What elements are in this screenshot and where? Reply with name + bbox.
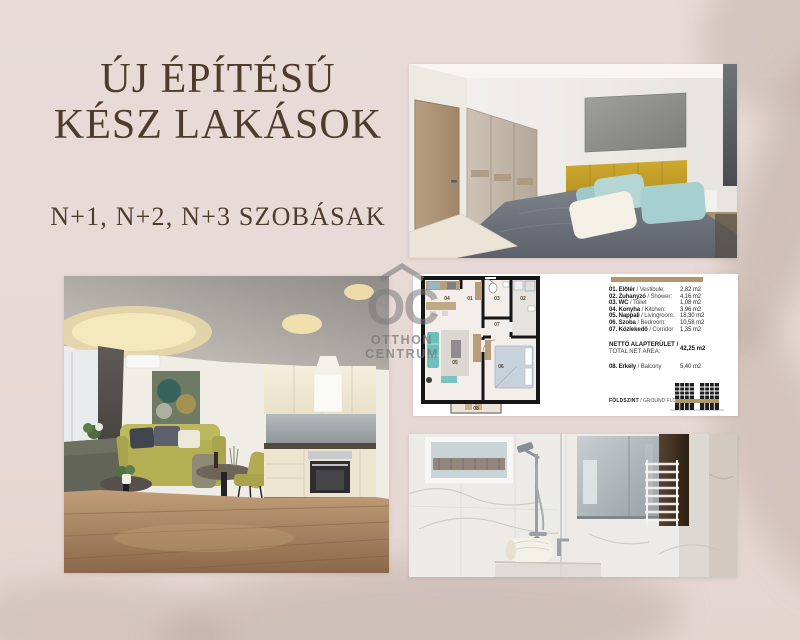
headline: ÚJ ÉPÍTÉSÚ KÉSZ LAKÁSOK xyxy=(48,56,388,148)
legend-row: 03. WC / Toilet1,08 m2 xyxy=(609,300,719,307)
room-number-living: 05 xyxy=(452,360,458,366)
room-number-wc: 03 xyxy=(494,296,500,302)
legend-row: 07. Közlekedő / Corridor1,35 m2 xyxy=(609,327,719,334)
room-number-vestibule: 01 xyxy=(467,296,473,302)
room-number-kitchen: 04 xyxy=(444,296,450,302)
lamp xyxy=(705,190,717,212)
floorplan-drawing: 04 01 03 02 07 05 06 08 xyxy=(421,276,541,414)
flyer-title-line1: ÚJ ÉPÍTÉSÚ xyxy=(48,56,388,102)
flyer-subtitle: N+1, N+2, N+3 SZOBÁSAK xyxy=(48,202,388,232)
bedroom-photo xyxy=(409,64,737,258)
ceiling-light xyxy=(282,314,322,334)
flyer-canvas: ÚJ ÉPÍTÉSÚ KÉSZ LAKÁSOK N+1, N+2, N+3 SZ… xyxy=(0,0,800,640)
wine-bottle xyxy=(214,452,218,468)
ac-unit xyxy=(126,355,160,368)
legend-row: 02. Zuhanyzó / Shower:4,16 m2 xyxy=(609,294,719,301)
total-net-area-value: 42,25 m2 xyxy=(680,346,705,352)
floorplan-panel: 04 01 03 02 07 05 06 08 01. Előtér / Ves… xyxy=(413,274,738,416)
curtain xyxy=(723,64,737,186)
entry-door-gap xyxy=(485,277,496,279)
oven xyxy=(308,451,352,459)
flyer-title-line2: KÉSZ LAKÁSOK xyxy=(48,102,388,148)
legend-row: 01. Előtér / Vestibule:2,82 m2 xyxy=(609,287,719,294)
floorplan-legend: 01. Előtér / Vestibule:2,82 m2 02. Zuhan… xyxy=(609,287,719,371)
legend-row-balcony: 08. Erkély / Balcony5,40 m2 xyxy=(609,364,719,371)
room-number-bedroom: 06 xyxy=(498,364,504,370)
building-elevation-icon xyxy=(669,380,725,414)
cushion xyxy=(178,430,200,448)
legend-row: 05. Nappali / Livingroom:18,30 m2 xyxy=(609,313,719,320)
accent-bar xyxy=(611,277,703,282)
room-number-corridor: 07 xyxy=(494,322,500,328)
countertop xyxy=(264,443,376,449)
ceiling-light xyxy=(344,284,374,300)
cushion xyxy=(154,426,180,446)
legend-row: 04. Konyha / Kitchen:3,96 m2 xyxy=(609,307,719,314)
wall-art xyxy=(585,93,686,152)
legend-row: 06. Szoba / Bedroom:10,58 m2 xyxy=(609,320,719,327)
leaf-shadow xyxy=(0,571,234,640)
bathroom-photo xyxy=(409,434,737,577)
door-handle xyxy=(451,180,457,183)
living-room-photo xyxy=(64,276,389,573)
room-number-shower: 02 xyxy=(520,296,526,302)
pillow xyxy=(639,181,706,224)
room-number-balcony: 08 xyxy=(473,406,479,412)
total-net-area: NETTÓ ALAPTERÜLET / TOTAL NET AREA: 42,2… xyxy=(609,342,719,356)
cushion xyxy=(129,427,154,449)
backsplash xyxy=(266,414,376,444)
